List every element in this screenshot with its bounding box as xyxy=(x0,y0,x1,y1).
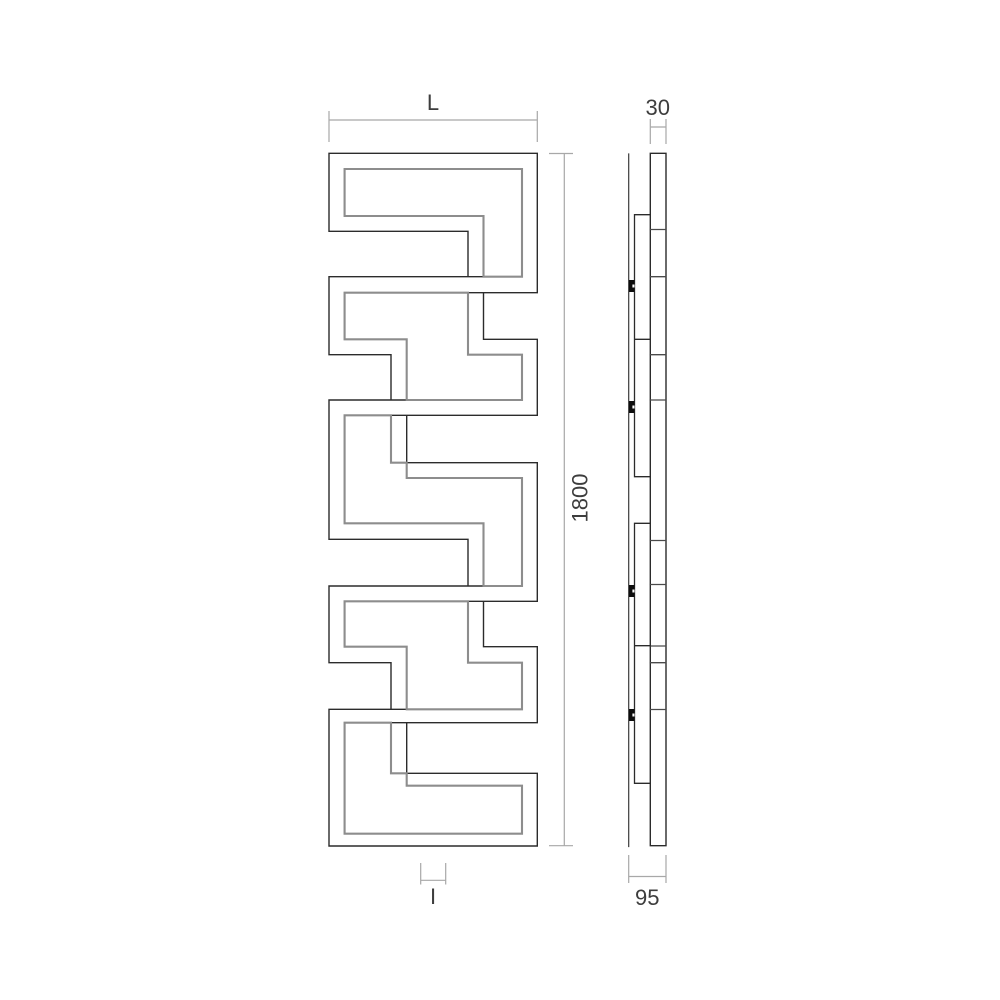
width-dimension-label: L xyxy=(427,90,439,115)
dimension-lines xyxy=(329,111,666,885)
side-profile-outline xyxy=(650,153,666,845)
connection-dimension-line xyxy=(421,863,446,885)
height-dimension-label: 1800 xyxy=(568,474,593,523)
front-view xyxy=(329,153,537,846)
wall-distance-dimension-label: 95 xyxy=(635,885,659,910)
side-view xyxy=(629,153,666,846)
front-view-inner-contours xyxy=(345,169,522,834)
width-dimension-line xyxy=(329,111,537,142)
connection-dimension-label: I xyxy=(430,884,436,909)
technical-drawing-page: L 30 1800 I 95 xyxy=(0,0,1000,1000)
front-view-outline xyxy=(329,153,537,846)
mounting-bracket-rails xyxy=(635,215,651,784)
depth-dimension-label: 30 xyxy=(646,95,670,120)
depth-dimension-line xyxy=(650,119,666,144)
side-profile-segment-dividers xyxy=(650,230,666,710)
radiator-drawing-canvas: L 30 1800 I 95 xyxy=(0,0,1000,1000)
wall-clips xyxy=(629,280,635,721)
dimension-labels: L 30 1800 I 95 xyxy=(427,90,670,910)
wall-distance-dimension-line xyxy=(629,855,666,883)
